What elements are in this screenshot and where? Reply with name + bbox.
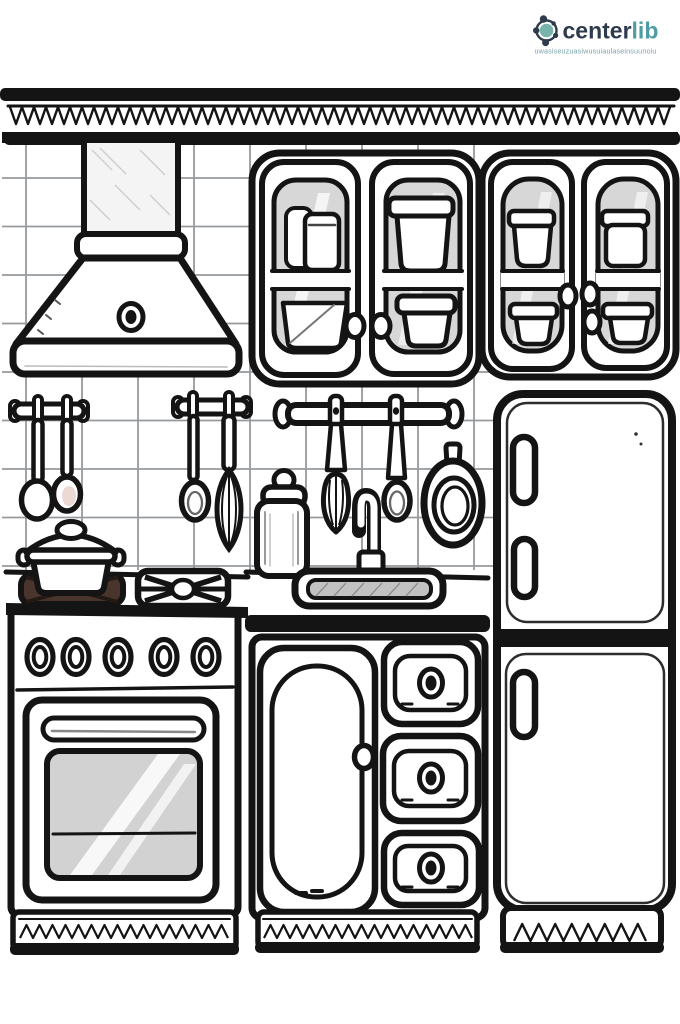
svg-text:centerlib: centerlib bbox=[563, 18, 659, 44]
svg-text:uwasiseuzuasiwusuiaulaseinsuun: uwasiseuzuasiwusuiaulaseinsuunoiu bbox=[534, 47, 656, 56]
